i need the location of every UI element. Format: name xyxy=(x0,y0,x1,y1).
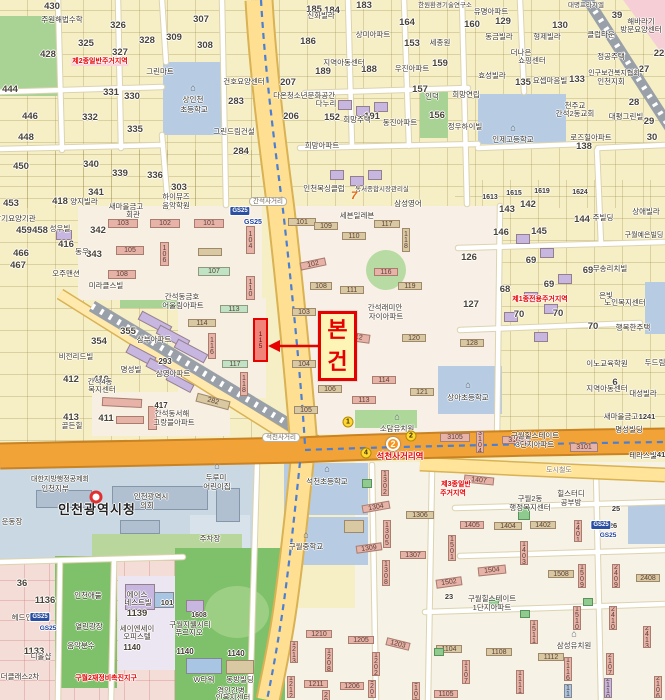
building-108: 108 xyxy=(310,282,332,290)
building xyxy=(102,397,142,408)
map-label: 308 xyxy=(197,41,213,51)
map-label: 453 xyxy=(3,199,19,209)
station-exit-badge: 2 xyxy=(406,431,417,442)
building-3105: 3105 xyxy=(440,433,470,442)
map-label: 25 xyxy=(612,505,620,513)
map-label: 325 xyxy=(78,39,94,49)
cadastral-grid xyxy=(0,560,185,700)
map-label: 제1종전용주거지역 xyxy=(512,296,567,304)
building-105: 105 xyxy=(294,406,318,414)
building-1108: 1108 xyxy=(486,648,512,656)
building-1206: 1206 xyxy=(340,682,364,690)
map-label: 413 xyxy=(63,413,79,423)
map-label: 동서종합시장관리실 xyxy=(355,186,409,193)
map-label: 비전리드빌 xyxy=(59,353,94,361)
map-label: 인덕 xyxy=(425,93,439,101)
map-label: 은빛 xyxy=(599,292,613,300)
map-label: 189 xyxy=(315,67,331,77)
map-label: 416 xyxy=(58,240,74,250)
map-label: 로즈힐아파트 xyxy=(570,134,611,142)
building-1504: 1504 xyxy=(478,565,507,577)
map-label: 지역아동센터 xyxy=(586,385,627,393)
building-113: 113 xyxy=(352,396,376,404)
map-label: 초등학교 xyxy=(180,106,208,114)
map-label: 183 xyxy=(356,1,372,11)
building-1203: 1203 xyxy=(385,637,410,651)
map-label: 이노교육학원 xyxy=(586,360,627,368)
map-label: 159 xyxy=(432,59,448,69)
map-label: 동진아파트 xyxy=(383,119,418,127)
map-label: 332 xyxy=(82,113,98,123)
railway-gyeongin xyxy=(92,306,335,452)
map-label: 인복지센터 xyxy=(216,694,251,700)
building-2408: 2408 xyxy=(636,574,660,582)
building-1105: 1105 xyxy=(434,690,458,698)
building-1510: 1510 xyxy=(573,606,581,630)
building xyxy=(534,332,548,342)
building-1107: 1107 xyxy=(462,660,470,684)
building-1207: 1207 xyxy=(322,690,330,700)
map-label: 143 xyxy=(499,205,515,215)
building xyxy=(216,488,240,522)
map-label: 구월중학교 xyxy=(289,543,324,551)
station-exit-badge: 1 xyxy=(343,417,354,428)
building-1302: 1302 xyxy=(381,470,389,496)
map-zone xyxy=(591,0,665,93)
map-label: 30 xyxy=(647,133,658,143)
map-label: 정우하이빌 xyxy=(448,123,483,131)
subway-line2-badge: 2 xyxy=(386,437,400,451)
building xyxy=(36,490,92,508)
map-label: 29 xyxy=(644,117,655,127)
building-1306: 1306 xyxy=(406,511,434,519)
map-label: 쇼핑센터 xyxy=(518,57,546,65)
map-label: 284 xyxy=(233,147,249,157)
building-101: 101 xyxy=(288,218,316,226)
map-label: 26 xyxy=(609,522,617,530)
building-1101: 1101 xyxy=(412,682,420,700)
building xyxy=(540,248,554,258)
map-label: 장기요양기관 xyxy=(0,215,36,223)
map-label: 459 xyxy=(16,226,32,236)
building-1308: 1308 xyxy=(382,560,390,586)
map-label: 간석동서해 xyxy=(155,410,190,418)
building-1401: 1401 xyxy=(574,520,582,542)
building-102: 102 xyxy=(299,257,326,270)
building-108: 108 xyxy=(108,270,136,279)
building-106: 106 xyxy=(318,385,342,393)
building-111: 111 xyxy=(340,286,364,294)
map-label: 283 xyxy=(228,97,244,107)
map-label: 한원환경기술연구소 xyxy=(418,2,472,9)
map-label: 336 xyxy=(147,171,163,181)
map-label: 448 xyxy=(18,133,34,143)
building-117: 117 xyxy=(222,360,248,368)
building xyxy=(198,248,222,256)
building xyxy=(518,506,530,520)
map-label: 대명프라지엘 xyxy=(568,2,604,9)
building-103: 103 xyxy=(292,308,316,316)
building xyxy=(174,339,209,364)
building-1205: 1205 xyxy=(348,636,374,644)
building-1405: 1405 xyxy=(460,521,484,529)
building-icon: ⌂ xyxy=(214,462,219,471)
map-label: 36 xyxy=(17,579,28,589)
map-label: 28 xyxy=(629,98,640,108)
map-label: 하이뮤즈 xyxy=(162,193,190,201)
subject-parcel-number: 115 xyxy=(257,331,264,349)
building xyxy=(148,406,157,430)
seven-eleven-badge: 7 xyxy=(351,190,357,202)
map-zone xyxy=(163,62,223,135)
building-1210: 1210 xyxy=(306,630,332,638)
map-label: 153 xyxy=(404,39,420,49)
building-104: 104 xyxy=(246,226,255,254)
map-label: 330 xyxy=(124,92,140,102)
building-1404: 1404 xyxy=(494,522,522,530)
map-label: 327 xyxy=(112,48,128,58)
map-zone xyxy=(284,463,368,515)
gs25-store-badge: GS25 xyxy=(29,612,50,622)
building-1403: 1403 xyxy=(520,541,528,565)
map-label: 1241 xyxy=(639,413,656,421)
map-label: 두드림 xyxy=(645,359,665,367)
map-label: 간석2동교회 xyxy=(556,110,595,118)
map-label: 어울림아파트 xyxy=(162,302,203,310)
building xyxy=(520,610,530,618)
building-110: 110 xyxy=(246,276,255,300)
building xyxy=(362,479,372,488)
map-zone xyxy=(478,94,566,144)
building-102: 102 xyxy=(150,219,180,228)
map-label: W타워 xyxy=(194,676,215,684)
building-icon: ⌂ xyxy=(571,630,576,639)
subject-parcel: 115 xyxy=(253,318,268,362)
map-label: 152 xyxy=(324,113,340,123)
map-label: 삼성유치원 xyxy=(557,642,592,650)
map-label: 구월2동 xyxy=(518,495,543,503)
building-icon: ⌂ xyxy=(394,413,399,422)
map-label: 대한지방행정공제회 xyxy=(31,476,89,484)
map-label: 인천복싱클럽 xyxy=(303,185,344,193)
map-label: 구월지웰시티 xyxy=(169,621,210,629)
map-label: 69 xyxy=(526,256,537,266)
building xyxy=(504,312,518,322)
map-label: 행정복지센터 xyxy=(509,504,550,512)
building-1211: 1211 xyxy=(304,680,328,688)
building-118: 118 xyxy=(240,372,248,396)
gs25-store-badge: GS25 xyxy=(590,520,611,530)
map-label: 새마을금고 xyxy=(604,413,639,421)
map-zone xyxy=(0,16,62,96)
map-zone xyxy=(355,410,417,428)
building-1111: 1111 xyxy=(516,670,524,694)
map-label: 331 xyxy=(103,88,119,98)
map-label: 309 xyxy=(166,33,182,43)
map-label: 제2종일반주거지역 xyxy=(71,58,128,66)
map-label: 1140 xyxy=(227,650,244,659)
map-label: 1613 xyxy=(482,194,498,202)
building-117: 117 xyxy=(374,220,400,228)
map-label: 유명아파트 xyxy=(474,8,509,16)
map-label: 339 xyxy=(112,169,128,179)
map-label: 신화빌라 xyxy=(307,12,335,20)
building-1304: 1304 xyxy=(362,501,391,514)
building-icon: ⌂ xyxy=(190,84,195,93)
map-label: 공부방 xyxy=(561,499,582,507)
map-label: GS25 xyxy=(600,532,617,539)
map-label: 간석동금호 xyxy=(165,293,200,301)
map-label: 더나은 xyxy=(511,49,532,57)
building-1208: 1208 xyxy=(325,648,333,672)
map-label: 인제고등학교 xyxy=(492,136,533,144)
building xyxy=(120,520,160,534)
map-label: 188 xyxy=(361,65,377,75)
map-label: 인천지회 xyxy=(597,78,625,86)
map-zone xyxy=(0,560,185,700)
map-label: 146 xyxy=(493,228,509,238)
building xyxy=(558,274,572,284)
main-road-south xyxy=(268,462,302,700)
building-1502: 1502 xyxy=(436,576,463,589)
building-110: 110 xyxy=(342,232,366,240)
building xyxy=(524,292,538,302)
road-se xyxy=(420,464,665,475)
map-label: 세이엔세이 xyxy=(120,625,155,633)
building xyxy=(186,658,222,674)
map-label: 회관 xyxy=(126,211,140,219)
map-label: 주빌딩 xyxy=(593,214,614,222)
map-label: 골든힐 xyxy=(62,422,83,430)
main-road-orange xyxy=(0,441,665,456)
map-label: 오피스텔 xyxy=(123,633,151,641)
station-exit-badge: 4 xyxy=(361,448,372,459)
building-104: 104 xyxy=(292,360,316,368)
gs25-store-badge: GS25 xyxy=(229,206,250,216)
building xyxy=(344,520,364,533)
map-label: 135 xyxy=(515,78,531,88)
map-label: 그랑블아파트 xyxy=(153,419,194,427)
map-label: 444 xyxy=(2,85,18,95)
building xyxy=(56,230,72,240)
building-1112: 1112 xyxy=(538,653,564,661)
map-label: 주차장 xyxy=(200,535,221,543)
map-label: 열린광장 xyxy=(75,623,103,631)
building-1213: 1213 xyxy=(290,641,298,663)
map-label: 희망주택 xyxy=(343,116,371,124)
map-label: 70 xyxy=(588,322,599,332)
map-label: 다온 xyxy=(273,92,287,100)
building-128: 128 xyxy=(460,339,484,347)
map-label: 행복한주택 xyxy=(616,324,651,332)
map-zone xyxy=(420,92,448,138)
map-label: 도시철도 xyxy=(546,467,572,475)
map-label: 푸르지오 xyxy=(175,629,203,637)
map-label: 39 xyxy=(612,11,623,21)
map-label: 335 xyxy=(127,125,143,135)
building-2107: 2107 xyxy=(606,653,614,675)
map-label: 인천애뜰 xyxy=(74,592,102,600)
map-label: 156 xyxy=(429,111,445,121)
building-1309: 1309 xyxy=(356,542,383,554)
map-label: 1624 xyxy=(572,189,588,197)
map-label: 450 xyxy=(13,162,29,172)
map-label: 130 xyxy=(552,21,568,31)
map-label: 두루미 xyxy=(206,474,227,482)
railway-topright xyxy=(584,0,665,128)
building-1511: 1511 xyxy=(530,620,538,644)
map-label: 소담유치원 xyxy=(380,425,415,433)
map-label: 클럽타운 xyxy=(587,31,615,39)
subject-annotation-box: 본건 xyxy=(318,311,357,381)
building-119: 119 xyxy=(398,282,422,290)
building-1116: 1116 xyxy=(564,657,572,681)
map-label: 정공주택 xyxy=(597,53,625,61)
building-107: 107 xyxy=(198,267,230,276)
map-label: 석천초등학교 xyxy=(306,478,347,486)
map-zone xyxy=(92,534,242,560)
building-icon: ⌂ xyxy=(303,531,308,540)
building xyxy=(154,592,174,608)
building xyxy=(374,102,388,112)
map-zone xyxy=(175,548,285,700)
map-label: 69 xyxy=(544,280,555,290)
map-label: 주원해법수학 xyxy=(41,16,82,24)
building-2410: 2410 xyxy=(609,606,617,630)
map-label: 160 xyxy=(464,20,480,30)
map-label: 석천사거리역 xyxy=(377,452,424,461)
building-3101: 3101 xyxy=(570,443,598,452)
map-label: 412 xyxy=(63,375,79,385)
building-121: 121 xyxy=(410,388,434,396)
map-label: 157 xyxy=(412,85,428,95)
map-label: 1619 xyxy=(534,188,550,196)
building-3103: 3103 xyxy=(502,436,530,444)
map-label: 우진아파트 xyxy=(395,65,430,73)
map-label: 자이아파트 xyxy=(369,313,404,321)
map-label: 133 xyxy=(569,75,585,85)
map-zone xyxy=(55,556,117,688)
map-label: 326 xyxy=(110,21,126,31)
building xyxy=(112,486,208,510)
building-105: 105 xyxy=(116,246,144,255)
map-label: 음악분수 xyxy=(67,642,95,650)
building-1202: 1202 xyxy=(372,652,380,676)
diagonal-road xyxy=(60,294,312,452)
map-label: 185 xyxy=(306,5,322,15)
map-label: 307 xyxy=(193,15,209,25)
building xyxy=(516,234,530,244)
map-label: 129 xyxy=(495,17,511,27)
map-label: 희망연립 xyxy=(452,91,480,99)
building-2413: 2413 xyxy=(643,626,651,648)
map-label: 청소년문화공간 xyxy=(287,92,335,100)
building-2110: 2110 xyxy=(604,678,612,698)
map-label: 세종원 xyxy=(430,39,451,47)
map-label: 6 xyxy=(612,378,617,388)
map-label: 새마을금고 xyxy=(109,203,144,211)
map-label: 테라스빌 xyxy=(629,452,657,460)
map-label: 상인천 xyxy=(183,96,204,104)
building-1407: 1407 xyxy=(464,474,495,485)
map-label: 동우 xyxy=(75,248,89,256)
map-label: 대성빌라 xyxy=(629,390,657,398)
map-zone xyxy=(645,282,665,334)
map-label: 구월2재정비촉진지구 xyxy=(75,675,137,683)
map-label: 164 xyxy=(399,18,415,28)
map-label: 1608 xyxy=(191,612,207,620)
map-label: 상아초등학교 xyxy=(447,394,488,402)
map-label: 410 xyxy=(93,375,109,385)
map-label: 1133 xyxy=(24,647,45,657)
map-label: 207 xyxy=(280,78,296,88)
cadastral-grid xyxy=(455,180,665,438)
map-label: 상애빌라 xyxy=(632,208,660,216)
map-label: 68 xyxy=(500,285,511,295)
map-label: 복지센터 xyxy=(88,386,116,394)
map-label: 헤드인 xyxy=(12,614,33,622)
building-118: 118 xyxy=(402,228,410,252)
map-label: 방문요양센터 xyxy=(620,26,661,34)
subject-annotation-label: 본건 xyxy=(325,314,350,378)
building-101: 101 xyxy=(194,219,224,228)
map-label: 명성빌딩 xyxy=(615,426,643,434)
map-label: 대평그린빌 xyxy=(609,113,644,121)
map-label: 340 xyxy=(83,160,99,170)
building-1402: 1402 xyxy=(530,521,556,529)
map-label: 무송리치빌 xyxy=(593,265,628,273)
map-label: 241 xyxy=(653,451,665,459)
map-label: 형제빌라 xyxy=(533,33,561,41)
building-2106: 2106 xyxy=(654,676,662,698)
building-1509: 1509 xyxy=(578,564,586,588)
building xyxy=(356,106,370,116)
building-1201: 1201 xyxy=(368,680,376,698)
map-label: 466 xyxy=(13,249,29,259)
map-label: 효성빌라 xyxy=(478,72,506,80)
building xyxy=(116,416,144,424)
map-label: 간석래미안 xyxy=(368,304,403,312)
map-label: 1140 xyxy=(123,644,140,653)
building-icon: ⌂ xyxy=(324,465,329,474)
map-label: 노인복지센터 xyxy=(604,299,645,307)
map-label: 428 xyxy=(40,50,56,60)
map-canvas[interactable]: 1031021011041051061081071101131141161171… xyxy=(0,0,665,700)
building-116: 116 xyxy=(374,268,398,276)
map-label: 힐스터디 xyxy=(557,490,585,498)
map-label: 328 xyxy=(139,36,155,46)
map-label: 경인간병 xyxy=(217,687,245,695)
building-114: 114 xyxy=(372,376,396,384)
map-label: 천주교 xyxy=(565,102,586,110)
building-116: 116 xyxy=(208,333,216,359)
building-1501: 1501 xyxy=(448,535,456,561)
building xyxy=(226,660,254,674)
map-label: 138 xyxy=(576,142,592,152)
map-label: 206 xyxy=(283,112,299,122)
map-label: 341 xyxy=(88,188,104,198)
map-label: 명성빌 xyxy=(121,366,142,374)
map-label: 142 xyxy=(520,200,536,210)
building-114: 114 xyxy=(188,319,216,327)
map-label: 구월예은빌딩 xyxy=(625,232,664,240)
building xyxy=(350,176,364,186)
map-label: 다누리 xyxy=(316,100,337,108)
map-label: 23 xyxy=(445,593,453,601)
building xyxy=(434,648,444,656)
building-282: 282 xyxy=(195,393,230,410)
map-zone xyxy=(205,586,269,638)
